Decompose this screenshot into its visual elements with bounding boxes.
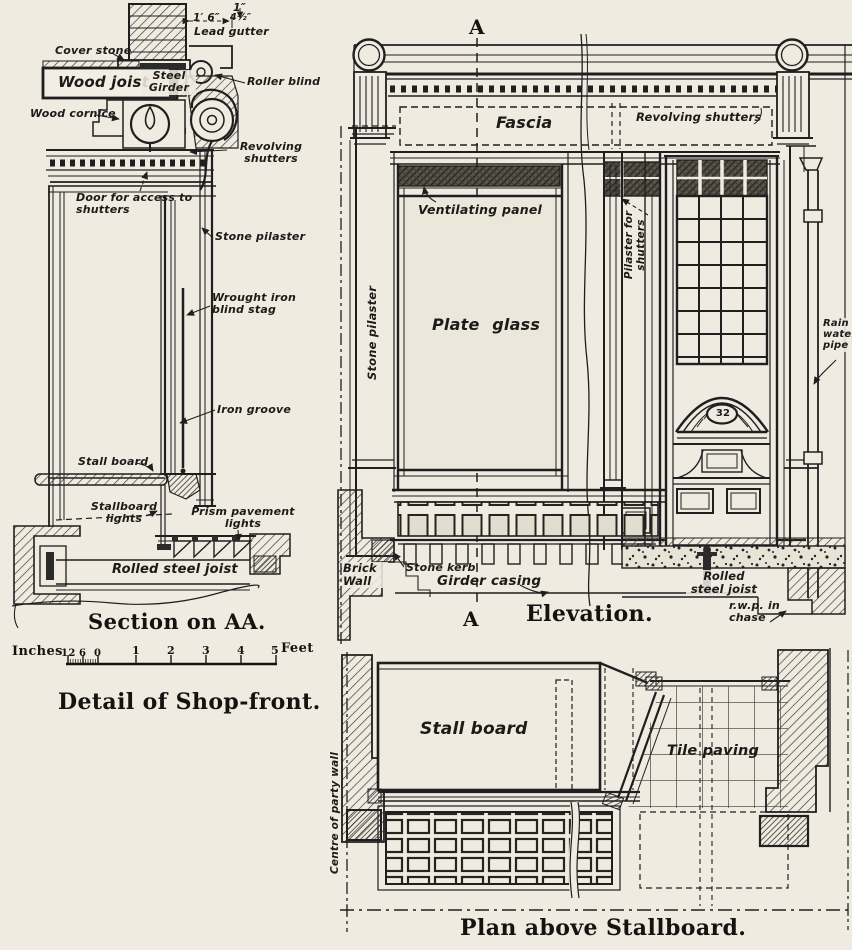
elevation-title: Elevation. — [526, 602, 653, 627]
stallboard-elevation — [390, 490, 806, 540]
steel-girder-label: Steel Girder — [142, 70, 196, 95]
rwp-in-chase-label: r.w.p. in chase — [729, 600, 793, 625]
plan-drawing — [340, 648, 852, 932]
lead-gutter-label: Lead gutter — [194, 26, 269, 38]
stall-board-slab — [35, 474, 167, 485]
rolled-steel-joist-section-label: Rolled steel joist — [112, 563, 238, 578]
dim-depth-label: 4½″ — [230, 13, 251, 24]
scale-tick-12: 12 — [61, 648, 76, 659]
centre-party-wall-label: Centre of party wall — [330, 752, 342, 874]
dim-width-label: 1′ 6″ — [193, 13, 220, 25]
stone-pilaster-elevation-label: Stone pilaster — [366, 286, 379, 380]
house-number: 32 — [712, 408, 734, 419]
roller-blind-label: Roller blind — [247, 76, 320, 88]
revolving-shutters-elevation-label: Revolving shutters — [636, 111, 761, 124]
wood-joist-label: Wood joist — [58, 74, 149, 91]
section-marker-bottom: A — [463, 608, 479, 630]
elevation-drawing — [338, 34, 852, 648]
scale-tick-5ft: 5 — [271, 645, 279, 657]
parapet-wall — [129, 4, 186, 66]
prism-lights-teeth — [174, 541, 251, 557]
cover-stone-label: Cover stone — [55, 45, 131, 57]
scale-tick-3ft: 3 — [202, 645, 210, 657]
rain-water-pipe-label: Rain water pipe — [822, 318, 852, 352]
section-title: Section on AA. — [88, 610, 266, 634]
main-title: Detail of Shop-front. — [58, 690, 321, 715]
right-console-bracket — [773, 40, 813, 145]
girder-casing-label: Girder casing — [437, 574, 541, 589]
rolled-steel-joist-elevation-label: Rolled steel joist — [686, 570, 762, 596]
ventilating-panel-label: Ventilating panel — [418, 203, 542, 217]
stall-board-section-label: Stall board — [78, 456, 148, 468]
ventilating-panel-band — [398, 166, 560, 186]
scale-tick-0: 0 — [94, 648, 101, 659]
section-marker-top: A — [469, 16, 485, 38]
pilaster-for-shutters-label: Pilaster for shutters — [624, 208, 648, 282]
stall-board-plan-label: Stall board — [420, 720, 528, 739]
prism-lights-label: Prism pavement lights — [183, 506, 303, 531]
stallboard-lights-label: Stallboard lights — [90, 501, 158, 526]
concrete-band — [622, 546, 845, 568]
console-scroll — [191, 99, 233, 141]
tile-paving-label: Tile paving — [664, 743, 762, 759]
scale-tick-4ft: 4 — [237, 645, 245, 657]
plate-glass-label: Plate glass — [432, 316, 526, 334]
brick-wall-label: Brick Wall — [342, 562, 388, 588]
scale-inches-label: Inches — [12, 645, 63, 660]
drawing-linework — [0, 0, 852, 950]
fascia-label: Fascia — [496, 114, 552, 132]
scale-feet-label: Feet — [281, 642, 314, 657]
scale-tick-6: 6 — [79, 648, 86, 659]
shop-door — [664, 156, 779, 552]
scale-tick-1ft: 1 — [132, 645, 140, 657]
iron-groove-label: Iron groove — [217, 404, 291, 416]
plan-title: Plan above Stallboard. — [460, 916, 746, 941]
blind-stag-label: Wrought iron blind stag — [212, 292, 322, 317]
stallboard-lights-row — [398, 502, 658, 536]
stone-pilaster-section-label: Stone pilaster — [215, 231, 305, 243]
stone-kerb-block — [372, 540, 394, 562]
revolving-shutters-section-label: Revolving shutters — [229, 141, 313, 166]
door-access-label: Door for access to shutters — [76, 192, 198, 217]
scale-tick-2ft: 2 — [167, 645, 175, 657]
wood-cornice-label: Wood cornice — [30, 108, 116, 120]
architectural-drawing-sheet: 1″ 1′ 6″ 4½″ Lead gutter Cover stone Woo… — [0, 0, 852, 950]
